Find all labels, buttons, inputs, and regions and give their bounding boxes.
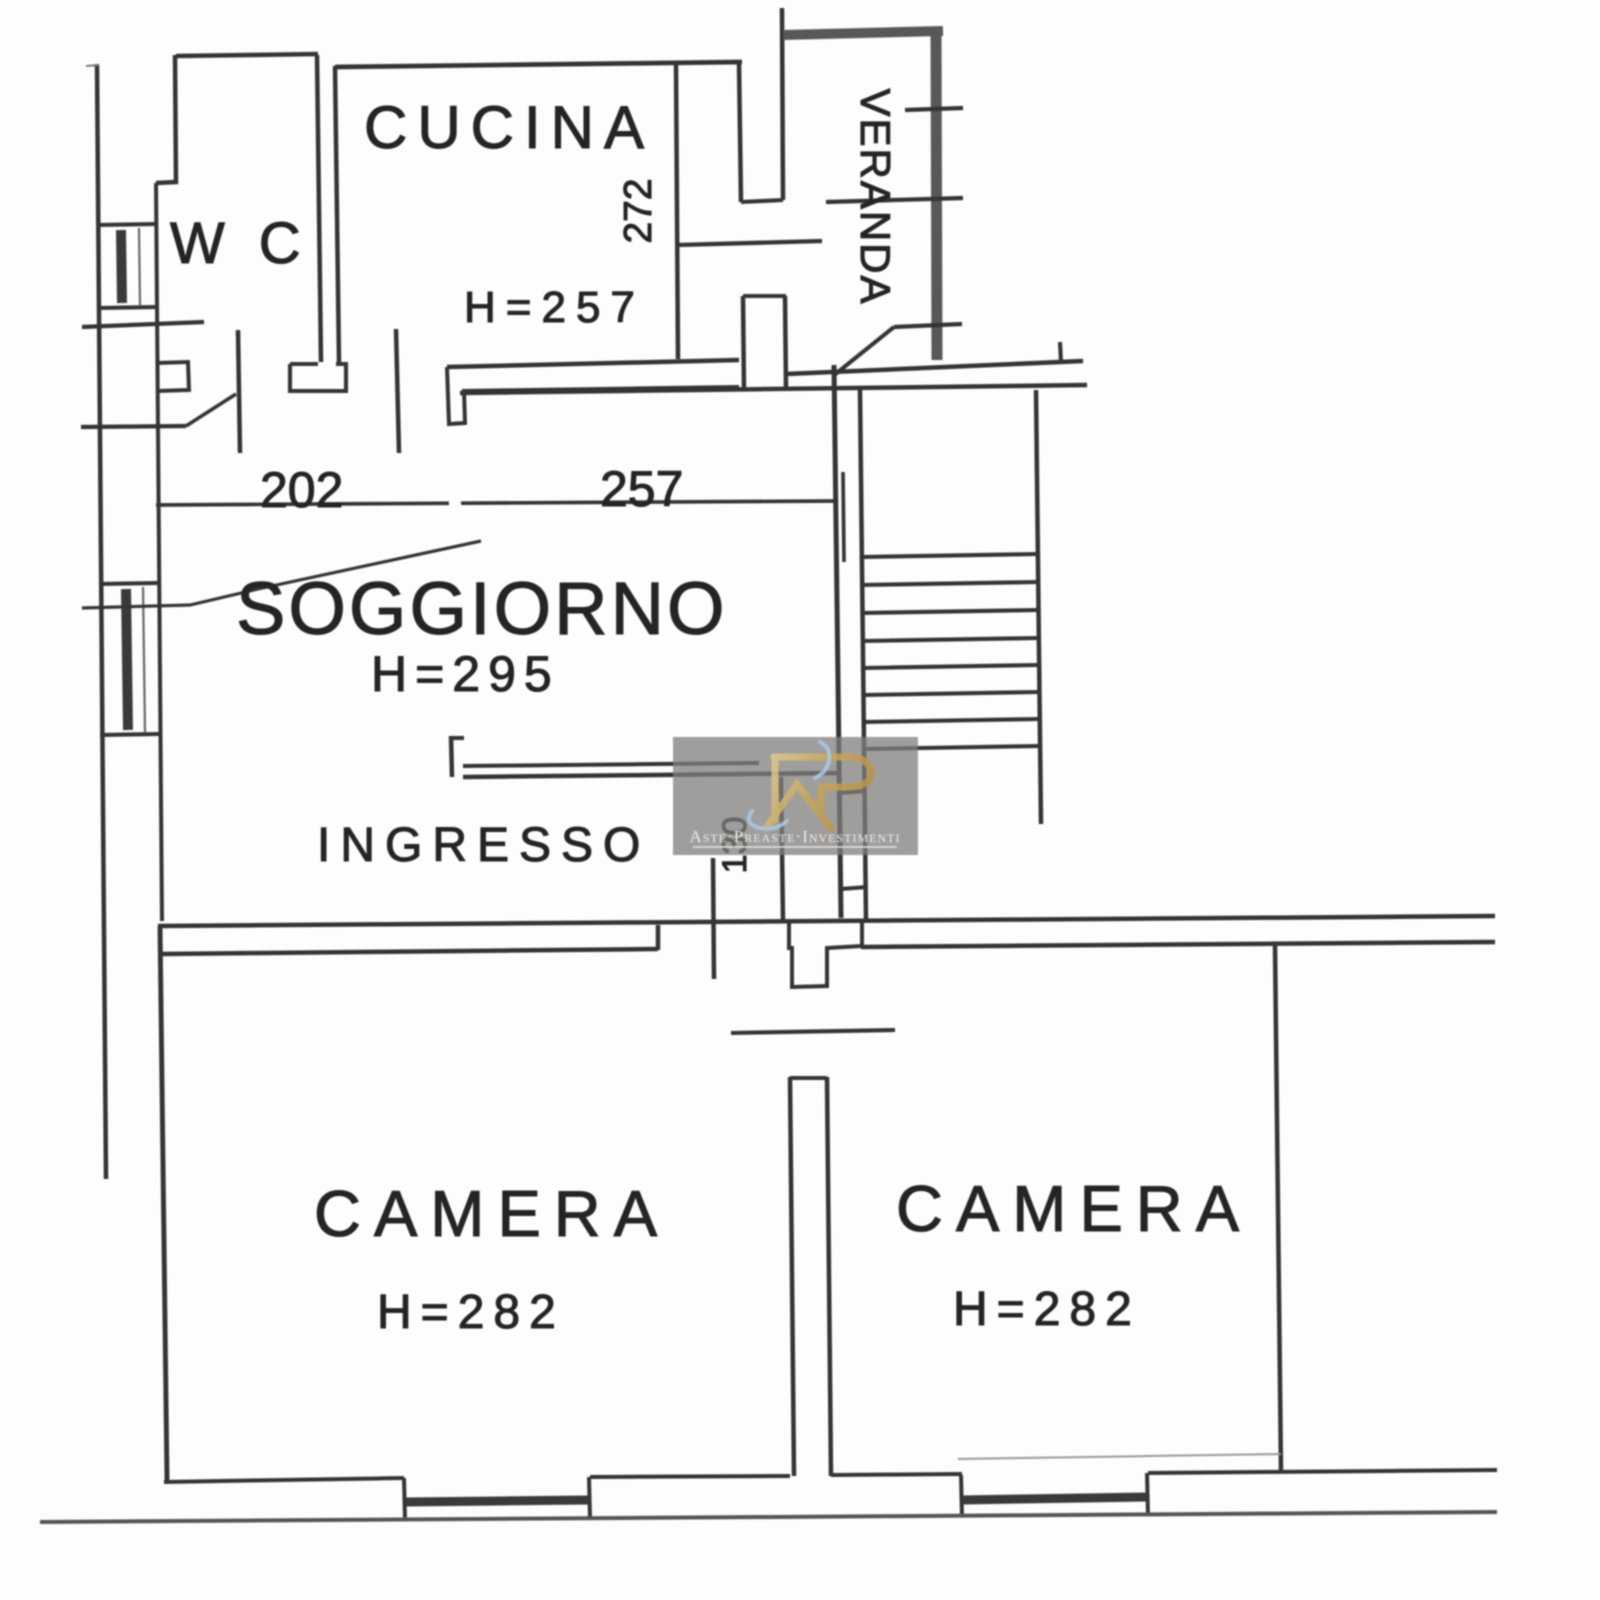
svg-text:H=257: H=257 xyxy=(464,283,645,332)
svg-text:Aste·Preaste·Investimenti: Aste·Preaste·Investimenti xyxy=(689,827,900,846)
svg-text:H=282: H=282 xyxy=(953,1283,1141,1336)
svg-text:CUCINA: CUCINA xyxy=(364,94,654,161)
svg-text:H=295: H=295 xyxy=(371,646,560,702)
svg-text:WC: WC xyxy=(170,211,335,276)
svg-text:202: 202 xyxy=(260,462,343,518)
svg-text:CAMERA: CAMERA xyxy=(896,1172,1252,1245)
svg-text:SOGGIORNO: SOGGIORNO xyxy=(236,567,728,650)
svg-text:INGRESSO: INGRESSO xyxy=(317,819,650,872)
svg-text:272: 272 xyxy=(617,178,660,243)
svg-text:VERANDA: VERANDA xyxy=(852,88,899,305)
svg-text:CAMERA: CAMERA xyxy=(314,1177,670,1250)
svg-text:H=282: H=282 xyxy=(377,1286,565,1339)
svg-text:257: 257 xyxy=(600,461,683,517)
